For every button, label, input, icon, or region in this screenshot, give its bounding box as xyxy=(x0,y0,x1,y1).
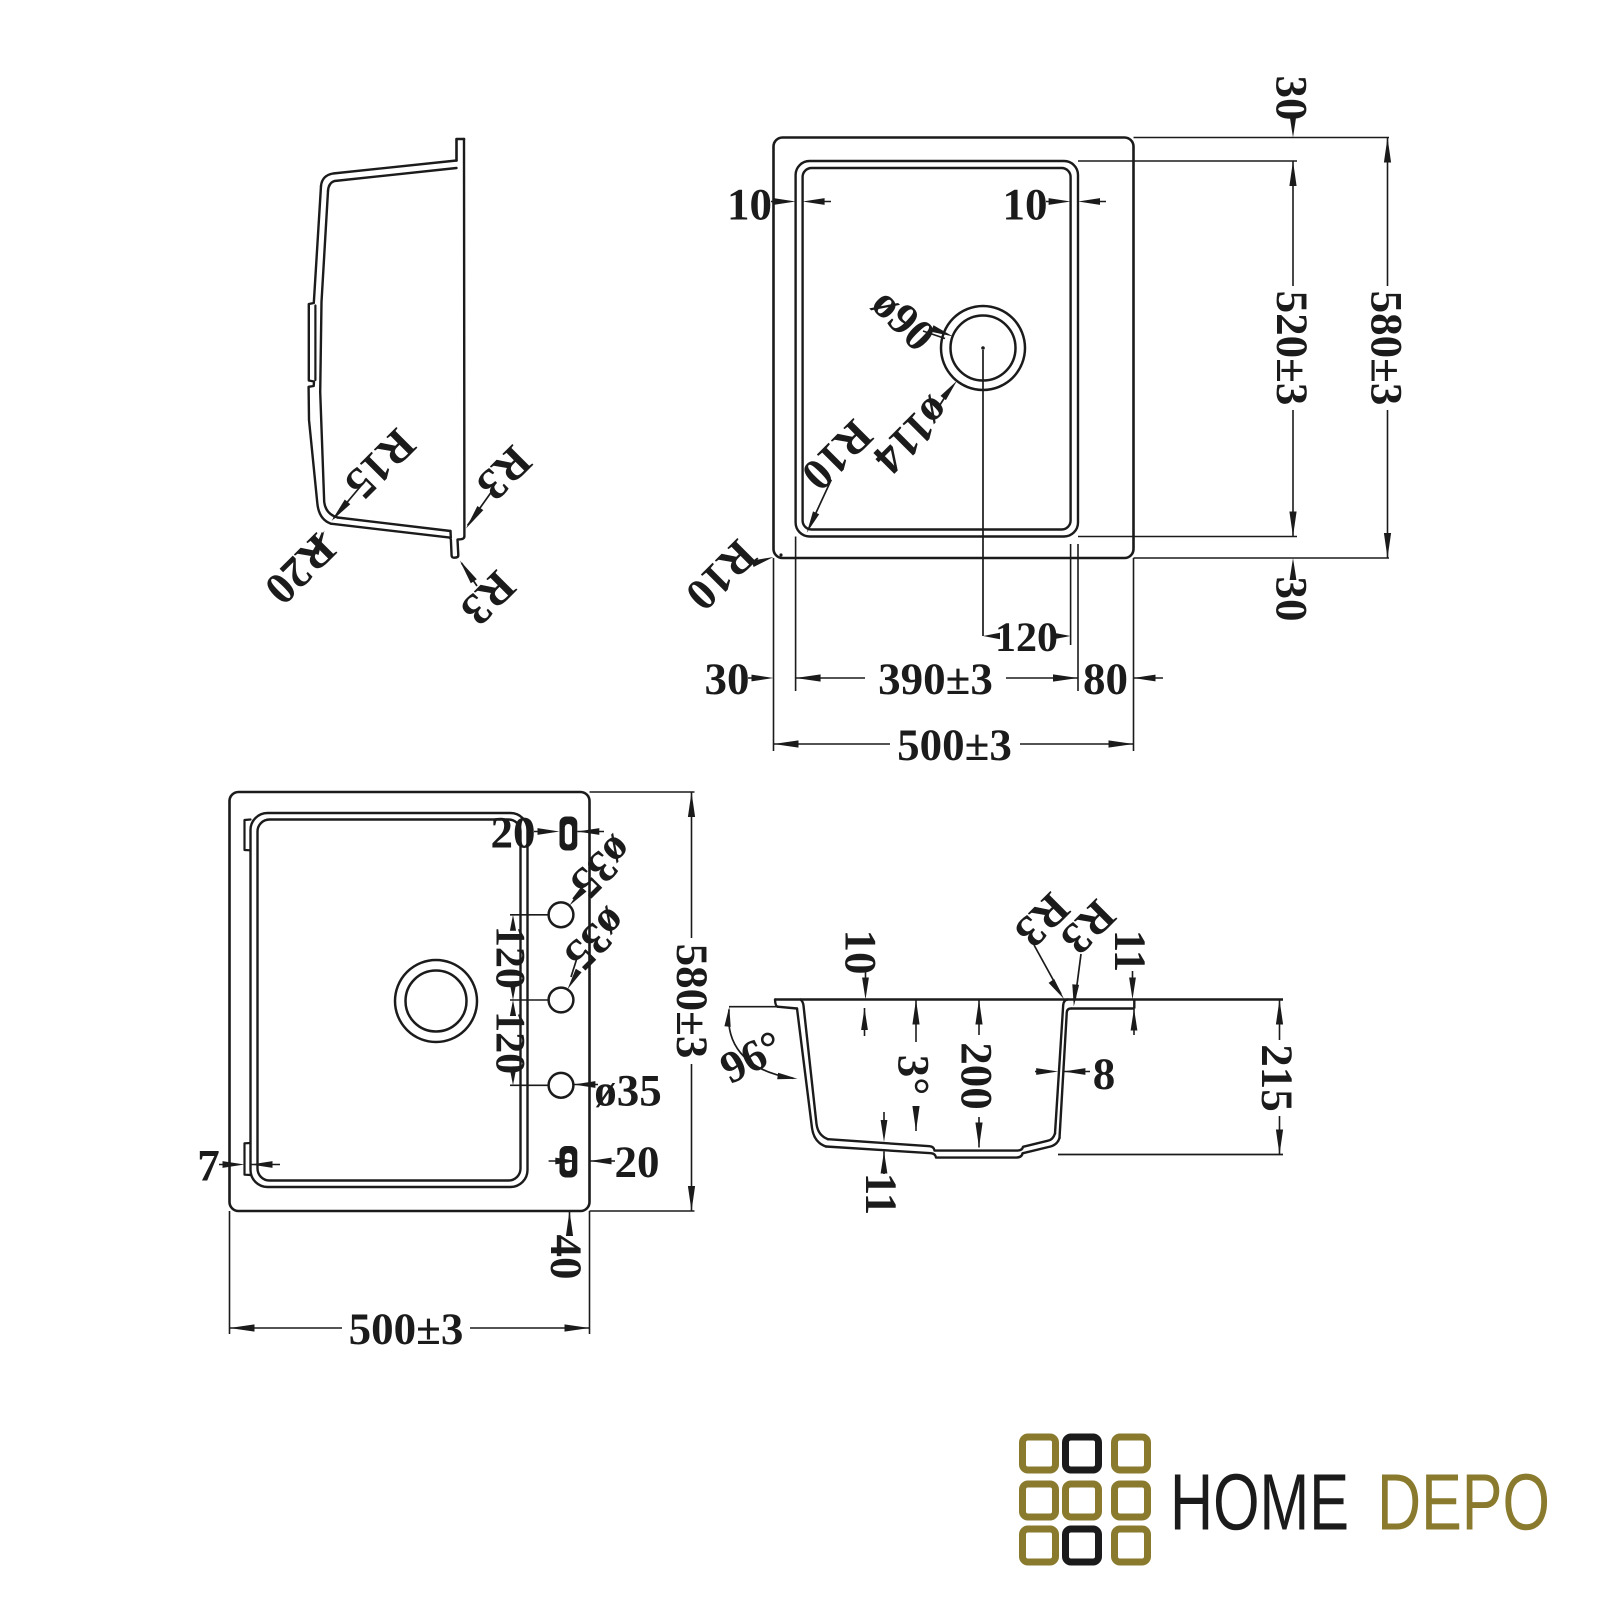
svg-text:30: 30 xyxy=(1267,577,1317,622)
svg-text:215: 215 xyxy=(1252,1044,1302,1112)
svg-text:580±3: 580±3 xyxy=(1362,291,1412,406)
svg-text:10: 10 xyxy=(836,930,886,975)
svg-text:120: 120 xyxy=(487,1011,533,1074)
svg-text:3°: 3° xyxy=(889,1055,939,1096)
svg-text:120: 120 xyxy=(487,926,533,989)
svg-text:11: 11 xyxy=(856,1173,906,1216)
svg-text:20: 20 xyxy=(615,1137,660,1187)
svg-text:20: 20 xyxy=(491,807,536,857)
svg-text:HOME: HOME xyxy=(1170,1458,1349,1547)
svg-text:30: 30 xyxy=(1267,76,1317,121)
svg-text:40: 40 xyxy=(541,1235,591,1280)
svg-text:520±3: 520±3 xyxy=(1267,291,1317,406)
svg-text:580±3: 580±3 xyxy=(667,944,717,1059)
svg-text:200: 200 xyxy=(952,1042,1002,1110)
svg-text:30: 30 xyxy=(705,654,750,704)
svg-text:7: 7 xyxy=(197,1140,220,1190)
svg-text:DEPO: DEPO xyxy=(1377,1458,1550,1547)
svg-text:500±3: 500±3 xyxy=(897,720,1012,770)
svg-text:80: 80 xyxy=(1083,654,1128,704)
svg-text:390±3: 390±3 xyxy=(878,654,993,704)
svg-text:ø35: ø35 xyxy=(594,1065,662,1115)
svg-text:10: 10 xyxy=(727,179,772,229)
svg-text:10: 10 xyxy=(1003,179,1048,229)
svg-text:120: 120 xyxy=(995,615,1058,661)
svg-text:500±3: 500±3 xyxy=(349,1304,464,1354)
svg-text:8: 8 xyxy=(1093,1049,1116,1099)
